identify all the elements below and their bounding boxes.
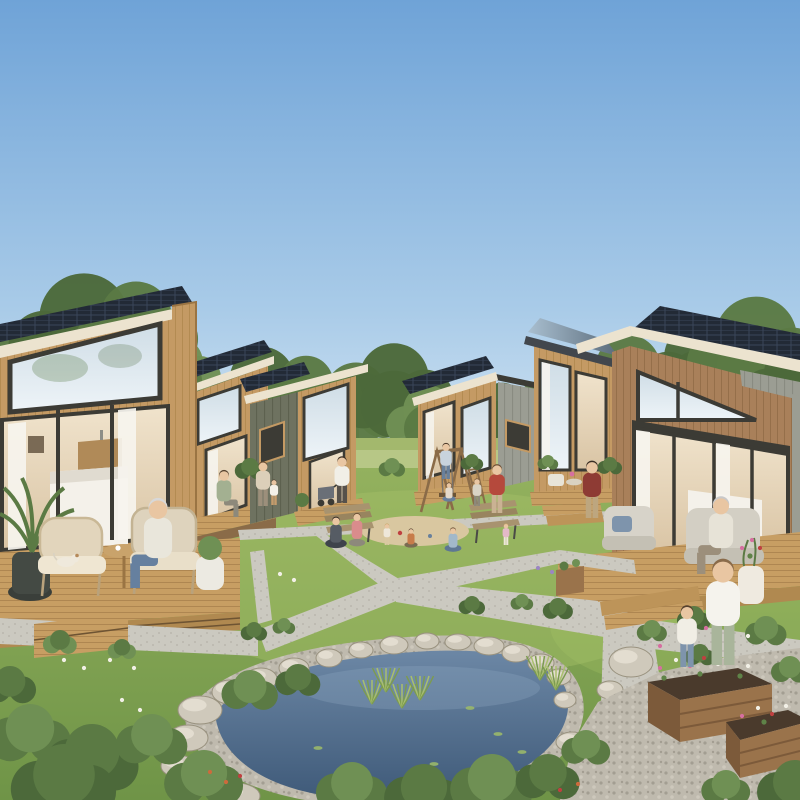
flower: [697, 671, 702, 676]
flower: [550, 570, 554, 574]
house4-wing-window: [506, 420, 530, 452]
shrub-clump: [6, 704, 54, 752]
flower: [746, 664, 750, 668]
flower: [750, 538, 754, 542]
rock: [609, 647, 653, 677]
stroller-wheel-1: [318, 500, 325, 507]
shrub-clump: [691, 644, 709, 662]
person-head: [259, 463, 268, 472]
shrub-clump: [50, 630, 70, 650]
flower: [292, 578, 296, 582]
flower: [747, 553, 752, 558]
shrub-clump: [131, 714, 173, 756]
person-head: [450, 528, 456, 534]
person-shin: [697, 553, 705, 574]
shrub-clump: [181, 750, 227, 796]
dog-ear: [75, 554, 79, 558]
person-torso: [217, 480, 232, 501]
flower: [740, 546, 744, 550]
person-head: [337, 457, 346, 466]
house3-window: [304, 384, 348, 460]
house1-window-tree-reflection: [32, 354, 88, 382]
house2-curtain: [208, 449, 218, 519]
flower: [138, 708, 142, 712]
toy-blue: [428, 534, 432, 538]
shrub-clump: [277, 618, 290, 631]
rock-highlight: [319, 651, 333, 659]
flower: [761, 719, 766, 724]
white-pot: [196, 556, 224, 590]
person-torso: [709, 513, 733, 548]
rock-highlight: [417, 635, 430, 642]
person-torso: [256, 471, 270, 490]
shrub-clump: [464, 596, 479, 611]
person-head: [149, 501, 167, 519]
right-armchair-left: [602, 506, 656, 550]
flower: [770, 712, 774, 716]
white-pot-plant: [198, 536, 222, 560]
person-torso: [583, 473, 601, 497]
shrub-clump: [542, 455, 554, 467]
flower: [704, 626, 708, 630]
house5-table-flowers: [570, 472, 575, 477]
shrub-clump: [529, 754, 566, 791]
planter-plant-2: [572, 559, 580, 567]
flower: [224, 780, 228, 784]
flower: [746, 634, 750, 638]
coffee-cup: [115, 545, 120, 550]
person-head: [586, 462, 597, 473]
rock-highlight: [351, 644, 364, 651]
person-torso: [270, 485, 278, 496]
person-head: [442, 444, 449, 451]
flower: [278, 572, 282, 576]
person-head: [353, 514, 360, 521]
shrub-clump: [515, 594, 528, 607]
rock: [316, 649, 342, 667]
house5-porch-table: [566, 479, 582, 486]
house1-curtain-left: [8, 422, 26, 550]
stroller-wheel-2: [328, 499, 335, 506]
flower: [784, 704, 788, 708]
water-lily: [466, 706, 475, 710]
person-shin: [233, 504, 238, 517]
flower: [536, 566, 540, 570]
person-head: [447, 483, 452, 488]
shrub-clump: [465, 454, 478, 467]
flower: [702, 656, 706, 660]
flower: [658, 666, 662, 670]
person-head: [409, 529, 414, 534]
shrub-clump: [384, 458, 399, 473]
armchair-cushion: [602, 536, 656, 550]
person-torso: [445, 487, 452, 498]
toy-red: [398, 531, 402, 535]
person-torso: [677, 618, 697, 644]
rendered-scene: [0, 0, 800, 800]
rock-highlight: [505, 646, 520, 654]
flower: [120, 698, 124, 702]
person-head: [713, 562, 734, 583]
person-head: [271, 480, 276, 485]
flower: [208, 770, 212, 774]
house5-porch-chair-left: [548, 474, 564, 486]
flower: [62, 658, 66, 662]
shrub-clump: [234, 670, 267, 703]
rock: [554, 692, 576, 708]
rock: [445, 634, 471, 650]
person-torso: [706, 581, 740, 626]
person-head: [713, 498, 729, 514]
person-torso: [352, 521, 363, 539]
house1-wall-art: [28, 436, 44, 453]
house5-curtain: [542, 362, 550, 470]
house3-potted-plant: [295, 493, 309, 507]
person-torso: [335, 466, 350, 486]
rock-highlight: [600, 683, 614, 691]
house5-window-right: [576, 372, 606, 470]
flower: [758, 546, 762, 550]
flower: [108, 658, 112, 662]
person-folded-legs: [349, 539, 365, 546]
person-head: [681, 607, 693, 619]
person-head: [332, 518, 340, 526]
shrub-clump: [643, 620, 661, 638]
flower: [661, 675, 666, 680]
person-torso: [489, 474, 505, 495]
rock-highlight: [448, 636, 462, 643]
house3-side-window: [260, 422, 284, 464]
rock-highlight: [477, 639, 494, 647]
rock: [380, 636, 408, 654]
shrub-clump: [241, 458, 259, 476]
shrub-clump: [754, 616, 778, 640]
person-torso: [473, 484, 482, 496]
shrub-clump: [549, 598, 567, 616]
person-torso: [384, 528, 391, 537]
patterned-pillow: [612, 516, 632, 532]
water-lily: [314, 746, 323, 750]
shrub-clump: [603, 457, 617, 471]
rock: [502, 644, 530, 662]
flower: [238, 774, 242, 778]
flower: [132, 666, 136, 670]
house1-window-reflection-2: [98, 344, 142, 368]
flower: [740, 714, 744, 718]
flower: [737, 673, 742, 678]
rock-highlight: [383, 638, 398, 646]
planter-plant-1: [560, 562, 569, 571]
flower-pot: [738, 566, 764, 604]
person-head: [492, 465, 502, 475]
person-torso: [330, 525, 342, 543]
water-lily: [518, 750, 527, 754]
person-shin: [130, 563, 140, 588]
shrub-clump: [114, 639, 131, 656]
white-planter: [196, 536, 224, 590]
rock-highlight: [182, 699, 206, 712]
person-head: [504, 524, 508, 528]
house1-faucet: [100, 430, 103, 440]
person-head: [474, 479, 479, 484]
flower: [674, 658, 678, 662]
flower: [558, 788, 562, 792]
shrub-clump: [246, 622, 261, 637]
rock: [415, 633, 439, 649]
person-torso: [144, 518, 172, 558]
person-torso: [440, 450, 452, 465]
person-head: [219, 471, 229, 481]
rock: [349, 642, 373, 658]
person-head: [385, 524, 389, 528]
scene-canvas: [0, 0, 800, 800]
flower: [756, 706, 760, 710]
flower: [658, 644, 662, 648]
shrub-clump: [779, 656, 800, 678]
rock-highlight: [613, 650, 637, 664]
rock: [178, 696, 222, 724]
flower: [82, 666, 86, 670]
shrub-clump: [712, 770, 741, 799]
person-torso: [449, 534, 458, 548]
shrub-clump: [285, 664, 311, 690]
planter-box: [556, 566, 584, 596]
stroller-body: [318, 486, 334, 500]
person-torso: [407, 533, 414, 544]
rock-highlight: [556, 694, 568, 701]
flower: [576, 782, 580, 786]
rock: [474, 637, 504, 655]
shrub-clump: [572, 730, 601, 759]
water-lily: [494, 732, 503, 736]
person-torso: [503, 528, 510, 537]
